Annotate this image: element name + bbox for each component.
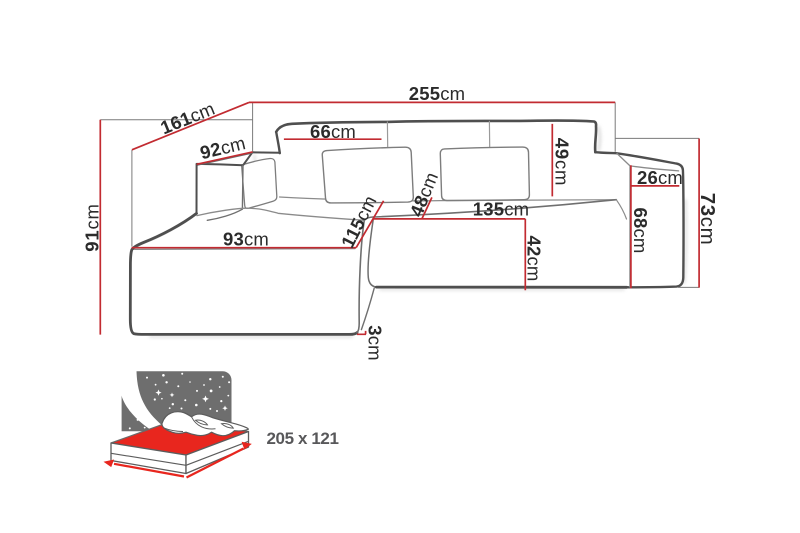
svg-text:73cm: 73cm (696, 193, 719, 246)
svg-text:135cm: 135cm (473, 199, 530, 220)
svg-text:93cm: 93cm (223, 229, 269, 250)
svg-text:66cm: 66cm (310, 121, 356, 142)
svg-text:255cm: 255cm (409, 83, 466, 104)
svg-text:91cm: 91cm (81, 203, 102, 251)
svg-text:3cm: 3cm (365, 325, 386, 361)
svg-text:26cm: 26cm (637, 167, 683, 188)
svg-text:68cm: 68cm (630, 207, 651, 253)
svg-text:205 x 121: 205 x 121 (266, 429, 338, 448)
svg-text:49cm: 49cm (552, 138, 573, 186)
svg-text:42cm: 42cm (524, 235, 545, 281)
